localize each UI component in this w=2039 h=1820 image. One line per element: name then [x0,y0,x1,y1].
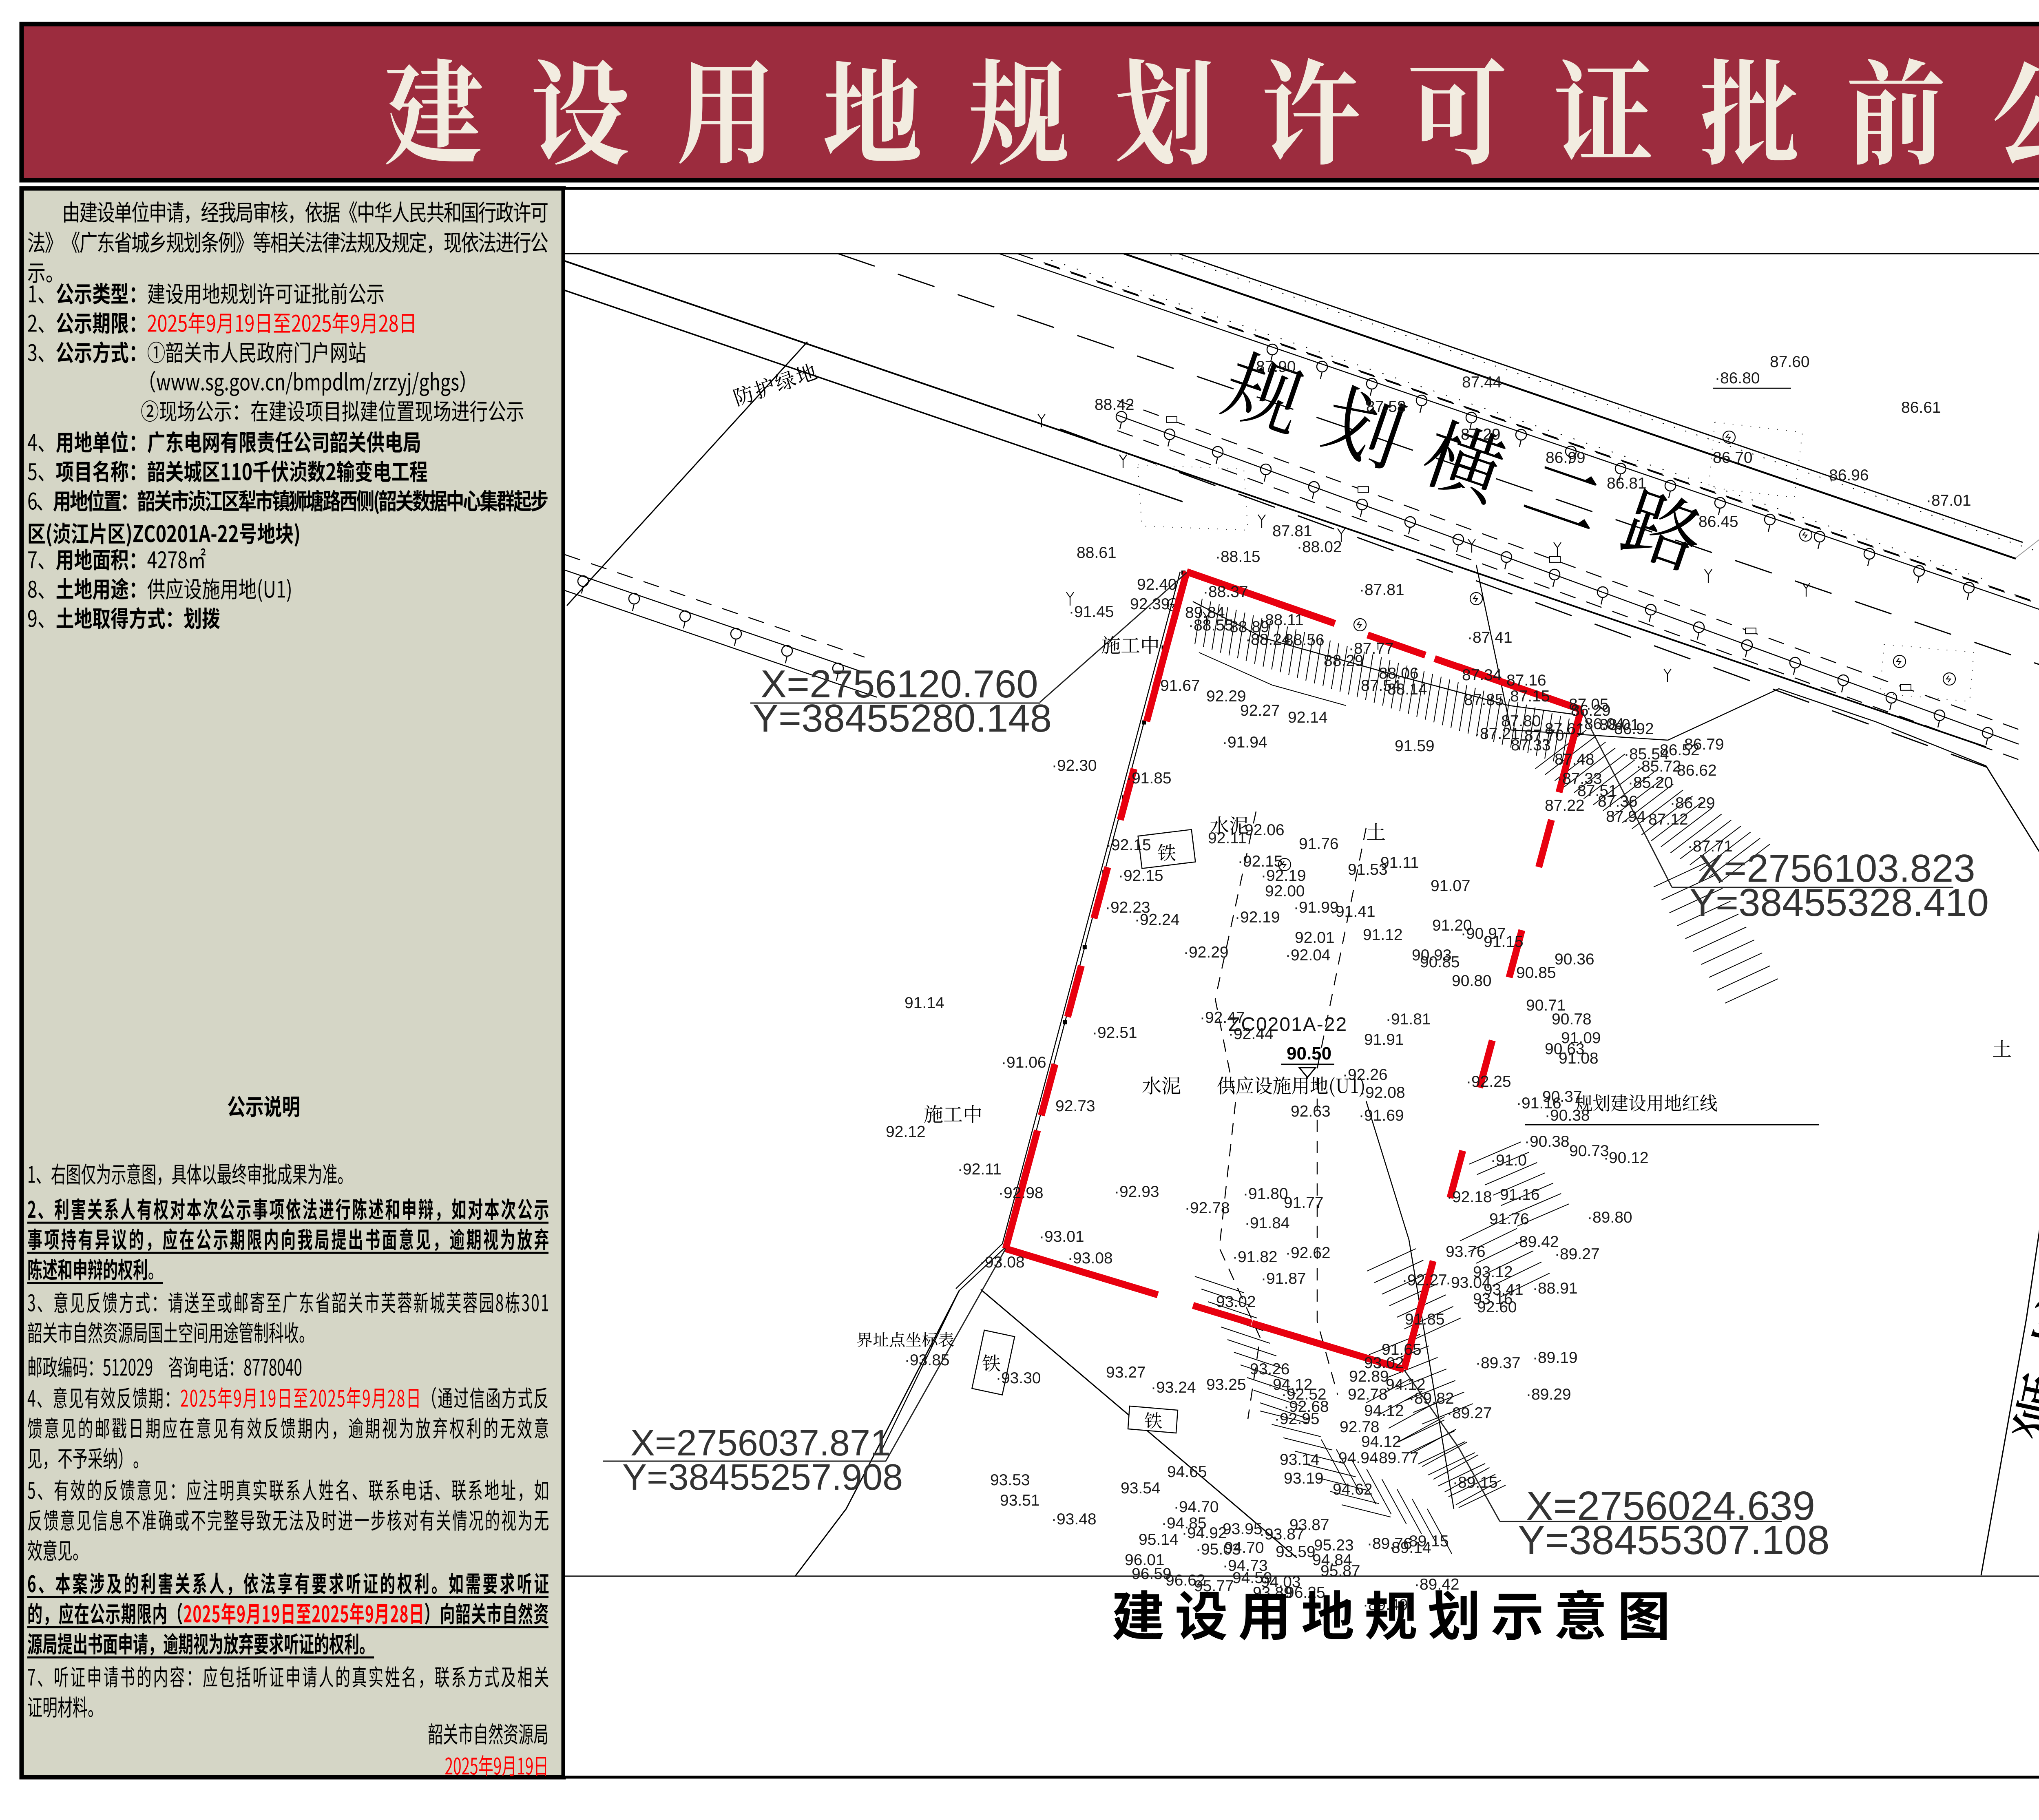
svg-text:86.45: 86.45 [1698,513,1738,531]
svg-text:88.61: 88.61 [1077,544,1117,562]
svg-text:92.73: 92.73 [1055,1097,1095,1115]
svg-text:92.63: 92.63 [1291,1103,1331,1120]
svg-text:·89.15: ·89.15 [1453,1474,1498,1491]
svg-text:91.77: 91.77 [1284,1194,1324,1212]
svg-text:·89.80: ·89.80 [1587,1209,1632,1226]
svg-text:95.87: 95.87 [1320,1562,1360,1580]
svg-text:87.15: 87.15 [1510,688,1550,705]
svg-text:·88.02: ·88.02 [1297,538,1342,556]
svg-text:96.25: 96.25 [1285,1584,1325,1601]
svg-text:86.62: 86.62 [1677,762,1717,779]
svg-text:·88.91: ·88.91 [1533,1280,1578,1297]
svg-text:·92.30: ·92.30 [1052,757,1097,774]
svg-text:93.76: 93.76 [1446,1243,1486,1261]
svg-text:·88.24: ·88.24 [1245,631,1291,648]
svg-text:·91.85: ·91.85 [1126,770,1172,787]
svg-text:87.33: 87.33 [1511,736,1551,754]
svg-text:·92.15: ·92.15 [1106,836,1151,854]
svg-text:·91.84: ·91.84 [1245,1214,1290,1232]
svg-text:·88.55: ·88.55 [1188,617,1234,634]
svg-text:·91.06: ·91.06 [1001,1054,1046,1071]
svg-text:93.51: 93.51 [1000,1492,1040,1509]
svg-text:·92.27: ·92.27 [1402,1272,1447,1289]
svg-text:94.12: 94.12 [1364,1402,1404,1420]
svg-text:·93.30: ·93.30 [996,1369,1041,1387]
svg-text:Y=38455307.108: Y=38455307.108 [1518,1517,1830,1563]
svg-text:·91.80: ·91.80 [1243,1185,1288,1203]
svg-text:·91.94: ·91.94 [1222,734,1267,751]
svg-text:92.27: 92.27 [1240,702,1280,719]
svg-text:93.95: 93.95 [1223,1520,1263,1538]
svg-text:·91.41: ·91.41 [1330,903,1376,920]
svg-text:95.14: 95.14 [1139,1531,1179,1548]
svg-text:91.76: 91.76 [1489,1210,1529,1228]
svg-text:93.59: 93.59 [1276,1543,1316,1561]
svg-text:·92.29: ·92.29 [1183,944,1229,961]
svg-text:92.60: 92.60 [1477,1298,1517,1316]
svg-text:·92.51: ·92.51 [1092,1024,1137,1042]
svg-text:91.67: 91.67 [1160,677,1200,694]
svg-text:92.11: 92.11 [1208,829,1247,847]
svg-text:93.53: 93.53 [990,1471,1030,1489]
svg-text:·87.81: ·87.81 [1359,581,1404,599]
svg-text:·92.47: ·92.47 [1200,1009,1245,1026]
svg-text:·92.24: ·92.24 [1134,911,1180,929]
svg-text:91.76: 91.76 [1299,835,1339,853]
svg-text:·86.80: ·86.80 [1715,369,1760,387]
svg-text:·89.27: ·89.27 [1447,1404,1492,1422]
svg-text:86.99: 86.99 [1546,449,1586,467]
svg-text:92.01: 92.01 [1295,929,1335,946]
svg-text:·91.69: ·91.69 [1359,1107,1404,1124]
svg-text:92.14: 92.14 [1288,709,1328,726]
svg-text:·92.25: ·92.25 [1466,1073,1511,1090]
svg-text:·89.27: ·89.27 [1555,1245,1600,1263]
svg-text:90.50: 90.50 [1287,1044,1331,1064]
svg-text:94.70: 94.70 [1224,1539,1264,1557]
svg-text:·87.71: ·87.71 [1687,838,1733,855]
svg-text:·92.44: ·92.44 [1228,1025,1274,1043]
svg-text:·92.08: ·92.08 [1360,1084,1405,1101]
svg-text:·92.62: ·92.62 [1285,1244,1331,1262]
svg-text:87.90: 87.90 [1256,358,1296,376]
svg-text:·85.20: ·85.20 [1628,774,1673,792]
svg-text:87.85: 87.85 [1464,691,1504,709]
svg-text:·85.72: ·85.72 [1636,758,1681,775]
svg-text:94.12: 94.12 [1361,1433,1401,1451]
svg-text:94.65: 94.65 [1167,1463,1207,1481]
svg-text:87.22: 87.22 [1545,797,1585,814]
svg-text:·88.15: ·88.15 [1215,548,1261,566]
svg-text:·88.37: ·88.37 [1203,583,1248,601]
svg-text:·92.19: ·92.19 [1235,909,1280,926]
svg-text:92.00: 92.00 [1265,882,1305,900]
svg-text:90.73: 90.73 [1569,1142,1609,1160]
svg-text:93.27: 93.27 [1106,1364,1146,1381]
svg-text:87.12: 87.12 [1648,811,1688,828]
svg-text:88.29: 88.29 [1324,652,1364,670]
svg-text:90.80: 90.80 [1452,972,1492,990]
svg-text:·93.08: ·93.08 [1068,1249,1113,1267]
svg-text:·92.15: ·92.15 [1118,867,1163,885]
svg-text:91.12: 91.12 [1363,926,1403,944]
svg-text:91.59: 91.59 [1395,737,1435,755]
svg-text:93.87: 93.87 [1289,1516,1329,1534]
svg-text:86.79: 86.79 [1684,736,1724,753]
svg-text:87.34: 87.34 [1462,666,1502,684]
svg-text:88.42: 88.42 [1095,396,1134,414]
svg-text:90.36: 90.36 [1555,951,1594,968]
svg-text:·90.12: ·90.12 [1603,1149,1649,1167]
svg-text:91.14: 91.14 [905,994,944,1012]
svg-text:87.44: 87.44 [1462,374,1502,391]
svg-text:·94.70: ·94.70 [1174,1498,1219,1516]
svg-text:93.54: 93.54 [1121,1479,1161,1497]
svg-text:·91.45: ·91.45 [1069,603,1114,621]
svg-text:87.29: 87.29 [1461,426,1501,443]
svg-text:·89.77: ·89.77 [1373,1449,1419,1467]
svg-text:94.62: 94.62 [1333,1481,1373,1498]
svg-text:·93.01: ·93.01 [1039,1228,1084,1245]
svg-text:91.91: 91.91 [1364,1031,1404,1048]
svg-text:93.02: 93.02 [1216,1293,1256,1311]
svg-text:·92.93: ·92.93 [1114,1183,1159,1201]
svg-text:87.48: 87.48 [1555,751,1594,768]
svg-text:·87.01: ·87.01 [1926,492,1971,509]
svg-text:88.14: 88.14 [1387,681,1427,698]
svg-text:93.26: 93.26 [1250,1360,1290,1378]
svg-text:91.08: 91.08 [1559,1050,1599,1067]
svg-text:Y=38455257.908: Y=38455257.908 [622,1457,903,1498]
svg-text:·93.08: ·93.08 [980,1254,1025,1271]
svg-text:90.85: 90.85 [1516,964,1556,982]
svg-text:93.19: 93.19 [1284,1470,1324,1487]
svg-text:·92.78: ·92.78 [1185,1199,1230,1217]
svg-text:92.12: 92.12 [886,1123,926,1141]
svg-text:90.78: 90.78 [1552,1011,1592,1028]
svg-text:·89.29: ·89.29 [1526,1386,1571,1403]
svg-text:91.16: 91.16 [1500,1186,1540,1203]
svg-text:87.94: 87.94 [1606,808,1646,825]
svg-text:·86.29: ·86.29 [1670,794,1715,812]
svg-text:91.85: 91.85 [1405,1311,1445,1328]
svg-text:91.15: 91.15 [1484,933,1524,951]
svg-text:·93.24: ·93.24 [1151,1379,1196,1396]
svg-text:·92.11: ·92.11 [958,1161,1002,1178]
svg-text:93.25: 93.25 [1206,1376,1246,1393]
svg-text:·91.81: ·91.81 [1386,1011,1431,1028]
svg-text:86.70: 86.70 [1713,449,1753,467]
svg-text:91.11: 91.11 [1380,854,1419,871]
svg-text:·91.87: ·91.87 [1261,1270,1306,1287]
svg-text:·89.19: ·89.19 [1533,1349,1578,1367]
svg-text:90.37: 90.37 [1542,1088,1582,1106]
svg-text:87.61: 87.61 [1545,720,1585,738]
svg-text:92.40: 92.40 [1137,576,1177,593]
svg-text:87.16: 87.16 [1506,672,1546,689]
svg-text:87.60: 87.60 [1770,353,1810,371]
svg-text:90.85: 90.85 [1420,953,1460,971]
svg-text:86.92: 86.92 [1614,720,1654,738]
svg-text:·88.11: ·88.11 [1260,611,1304,629]
svg-text:92.39: 92.39 [1130,595,1170,613]
svg-text:94.94: 94.94 [1338,1449,1378,1467]
svg-text:·92.19: ·92.19 [1261,867,1306,885]
svg-text:86.81: 86.81 [1607,475,1647,492]
svg-text:·89.37: ·89.37 [1475,1354,1521,1372]
svg-text:·93.04: ·93.04 [1446,1274,1491,1291]
svg-text:92.78: 92.78 [1348,1386,1388,1403]
svg-text:87.81: 87.81 [1272,522,1312,540]
svg-text:·91.0: ·91.0 [1491,1152,1527,1169]
svg-text:·92.18: ·92.18 [1447,1188,1492,1206]
svg-text:·90.38: ·90.38 [1545,1107,1590,1124]
svg-text:·92.04: ·92.04 [1285,946,1331,964]
svg-text:·92.26: ·92.26 [1342,1066,1388,1084]
svg-text:86.96: 86.96 [1829,467,1869,484]
svg-text:·92.95: ·92.95 [1274,1410,1320,1428]
svg-text:·94.92: ·94.92 [1182,1524,1227,1542]
svg-text:·91.82: ·91.82 [1232,1248,1278,1266]
svg-text:·89.42: ·89.42 [1514,1233,1559,1251]
svg-text:·92.98: ·92.98 [998,1184,1044,1202]
svg-text:92.06: 92.06 [1245,821,1285,839]
svg-text:92.89: 92.89 [1349,1368,1389,1385]
svg-text:88.56: 88.56 [1285,631,1325,649]
svg-text:·90.38: ·90.38 [1524,1133,1570,1150]
svg-text:·87.41: ·87.41 [1467,629,1513,646]
svg-text:·93.48: ·93.48 [1051,1510,1097,1528]
svg-text:86.61: 86.61 [1901,399,1941,416]
svg-text:87.58: 87.58 [1366,398,1406,416]
svg-text:91.07: 91.07 [1431,877,1471,895]
svg-text:89.14: 89.14 [1391,1539,1431,1557]
svg-text:93.14: 93.14 [1280,1451,1320,1468]
svg-text:·93.85: ·93.85 [905,1351,950,1369]
